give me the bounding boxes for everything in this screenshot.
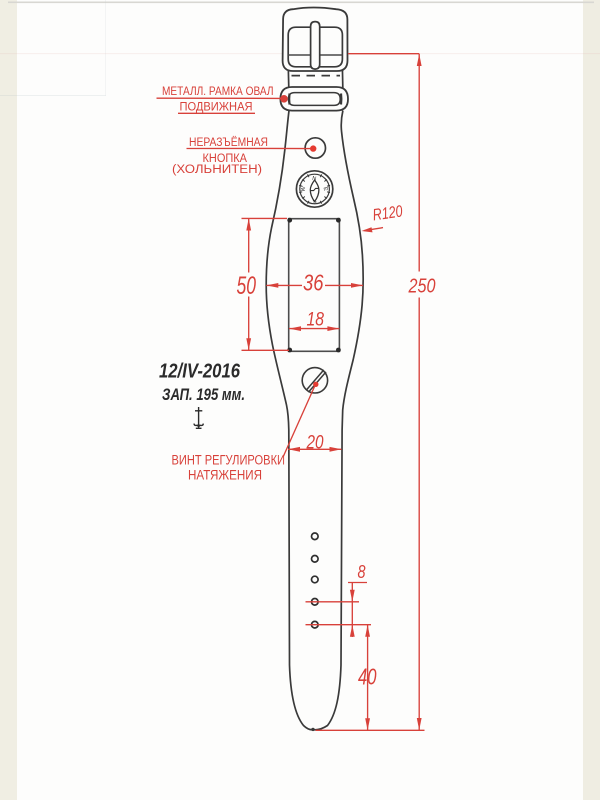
svg-text:50: 50 xyxy=(237,272,257,300)
svg-text:250: 250 xyxy=(408,276,436,298)
svg-text:ВИНТ РЕГУЛИРОВКИ: ВИНТ РЕГУЛИРОВКИ xyxy=(172,453,286,468)
svg-text:8: 8 xyxy=(358,562,366,582)
svg-text:НАТЯЖЕНИЯ: НАТЯЖЕНИЯ xyxy=(188,468,262,483)
svg-text:40: 40 xyxy=(358,664,377,690)
svg-text:(ХОЛЬНИТЕН): (ХОЛЬНИТЕН) xyxy=(172,162,262,176)
svg-text:36: 36 xyxy=(303,270,324,296)
svg-text:18: 18 xyxy=(307,310,325,331)
svg-text:ЗАП. 195 мм.: ЗАП. 195 мм. xyxy=(162,386,245,404)
svg-text:ПОДВИЖНАЯ: ПОДВИЖНАЯ xyxy=(180,99,253,113)
svg-text:12/IV-2016: 12/IV-2016 xyxy=(159,360,240,383)
svg-text:20: 20 xyxy=(306,432,324,453)
svg-text:НЕРАЗЪЁМНАЯ: НЕРАЗЪЁМНАЯ xyxy=(189,135,268,149)
svg-text:МЕТАЛЛ. РАМКА ОВАЛ: МЕТАЛЛ. РАМКА ОВАЛ xyxy=(162,84,274,98)
